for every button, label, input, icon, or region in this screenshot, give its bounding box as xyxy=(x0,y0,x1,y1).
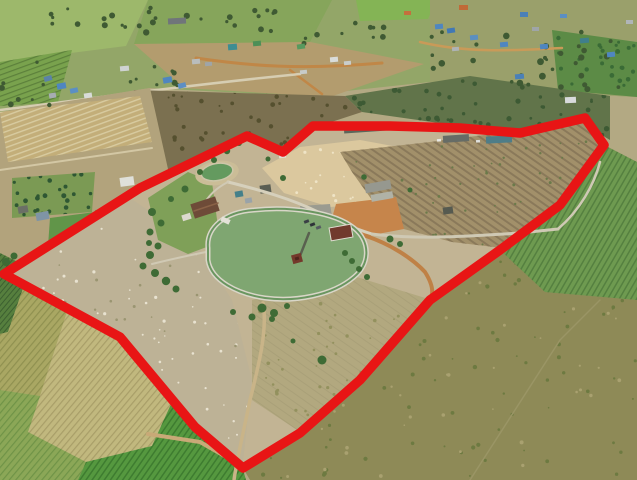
tree xyxy=(249,314,256,321)
scrub-texture-light-dot xyxy=(575,391,578,394)
field-south-mottle-dot xyxy=(319,302,323,306)
palm-orchard-trees-dot xyxy=(631,70,635,74)
trees-top-mid-dot xyxy=(257,14,261,18)
sand-speckle-dot xyxy=(352,196,354,198)
scrub-texture-dark-dot xyxy=(564,311,566,313)
scrub-texture-light-dot xyxy=(479,281,482,284)
orchard-main-trees-dot xyxy=(482,243,484,245)
orchard-main-trees-dot xyxy=(434,177,436,179)
dirt-west-speckle-dot xyxy=(92,270,95,273)
village-house-roof xyxy=(470,35,478,41)
dirt-west-speckle-dot xyxy=(57,278,59,280)
scrub-forest-texture-dot xyxy=(320,114,323,117)
trees-village-right-dot xyxy=(574,61,578,65)
field-south-mottle-dot xyxy=(329,326,332,329)
orchard-main-trees-dot xyxy=(438,195,441,198)
orchard-main-trees-dot xyxy=(485,172,488,175)
palm-orchard-trees-dot xyxy=(627,46,631,50)
dirt-west-speckle-dot xyxy=(233,420,235,422)
tree-band-texture-dot xyxy=(559,92,564,97)
trees-village-right-dot xyxy=(461,79,465,83)
trees-top-mid-dot xyxy=(272,9,277,14)
orchard-main-trees-dot xyxy=(432,202,434,204)
trees-top-center-dot xyxy=(372,26,376,30)
field-south-mottle-dot xyxy=(272,383,275,386)
orchard-left-trees-dot xyxy=(89,192,92,195)
field-south-mottle-dot xyxy=(266,362,270,366)
tree-band-texture-dot xyxy=(424,89,429,94)
dirt-west-speckle-dot xyxy=(192,352,195,355)
tree xyxy=(269,316,275,322)
scrub-texture-dark-dot xyxy=(499,261,502,264)
field-south-mottle-dot xyxy=(316,365,318,367)
tree xyxy=(318,356,327,365)
tree-band-texture-dot xyxy=(542,105,546,109)
field-south-mottle-dot xyxy=(326,346,328,348)
scrub-texture-dark-dot xyxy=(562,371,565,374)
scrub-texture-light-dot xyxy=(465,292,467,294)
sand-speckle-dot xyxy=(310,187,313,190)
scrub-texture-light-dot xyxy=(579,365,581,367)
field-south-mottle-dot xyxy=(325,320,327,322)
trees-top-mid-dot xyxy=(199,17,202,20)
scrub-texture-light-dot xyxy=(321,428,323,430)
palm-orchard-trees-dot xyxy=(599,55,603,59)
tree xyxy=(284,303,290,309)
scrub-texture-dark-dot xyxy=(476,443,480,447)
scrub-texture-dark-dot xyxy=(363,457,367,461)
sand-speckle-dot xyxy=(343,176,345,178)
dirt-west-speckle-dot xyxy=(158,342,160,344)
trees-top-left-dot xyxy=(102,22,108,28)
scrub-forest-texture-dot xyxy=(182,125,186,129)
trees-mid-left-dot xyxy=(129,80,133,84)
tree-band-texture-dot xyxy=(440,107,444,111)
village-house-roof xyxy=(626,20,633,24)
scrub-forest-texture-dot xyxy=(172,94,175,97)
tree-band-texture-dot xyxy=(426,116,431,121)
trees-village-right-dot xyxy=(520,85,525,90)
trees-top-left-dot xyxy=(102,16,107,21)
palm-orchard-trees-dot xyxy=(570,82,573,85)
dirt-west-speckle-dot xyxy=(235,357,237,359)
orchard-main-trees-dot xyxy=(499,163,502,166)
orchard-main-trees-dot xyxy=(525,147,528,150)
orchard-main-trees-dot xyxy=(485,148,487,150)
scrub-texture-dark-dot xyxy=(485,284,489,288)
trees-top-left-dot xyxy=(121,24,124,27)
sand-speckle-dot xyxy=(295,191,298,194)
trees-village-right-dot xyxy=(537,58,544,65)
scrub-forest-texture-dot xyxy=(326,104,329,107)
village-house-roof xyxy=(344,61,351,66)
trees-top-center-dot xyxy=(381,25,387,31)
field-south-mottle-dot xyxy=(373,319,377,323)
field-south-mottle-dot xyxy=(335,352,338,355)
scrub-forest-texture-dot xyxy=(168,97,170,99)
orchard-main-trees-dot xyxy=(441,145,443,147)
scrub-forest-texture-dot xyxy=(199,99,204,104)
tree xyxy=(270,309,278,317)
tree-band-texture-dot xyxy=(586,108,591,113)
trees-mid-left-dot xyxy=(172,80,178,86)
dirt-west-speckle-dot xyxy=(228,437,230,439)
dirt-west-speckle-dot xyxy=(205,387,207,389)
scrub-forest-texture-dot xyxy=(249,115,253,119)
trees-village-right-dot xyxy=(582,82,587,87)
village-house-roof xyxy=(452,47,459,52)
orchard-main-trees-dot xyxy=(539,144,541,146)
tree xyxy=(397,241,403,247)
trees-village-right-dot xyxy=(617,85,621,89)
trees-village-right-dot xyxy=(470,58,476,64)
scrub-forest-texture-dot xyxy=(180,146,185,151)
trees-village-right-dot xyxy=(431,66,436,71)
tree-band-texture-dot xyxy=(604,126,609,131)
orchard-main-trees-dot xyxy=(429,164,431,166)
scrub-texture-light-dot xyxy=(345,451,349,455)
scrub-texture-light-dot xyxy=(617,378,621,382)
dirt-west-speckle-dot xyxy=(154,296,157,299)
trees-top-center-dot xyxy=(340,32,343,35)
trees-top-mid-dot xyxy=(269,29,273,33)
scrub-texture-light-dot xyxy=(379,474,383,478)
trees-top-left-dot xyxy=(143,29,149,35)
scrub-texture-dark-dot xyxy=(411,442,415,446)
scrub-texture-light-dot xyxy=(598,367,600,369)
scrub-forest-texture-dot xyxy=(230,102,234,106)
scrub-texture-dark-dot xyxy=(495,338,499,342)
trees-top-mid-dot xyxy=(227,14,233,20)
dirt-west-speckle-dot xyxy=(199,297,201,299)
tree-band-texture-dot xyxy=(449,118,454,123)
orchard-main-trees-dot xyxy=(425,183,427,185)
palm-orchard-trees-dot xyxy=(617,41,620,44)
aerial-photo xyxy=(0,0,637,480)
trees-top-left-dot xyxy=(154,16,158,20)
scrub-texture-dark-dot xyxy=(621,299,624,302)
field-south-mottle-dot xyxy=(278,359,280,361)
scrub-texture-dark-dot xyxy=(491,331,495,335)
sand-speckle-dot xyxy=(319,174,321,176)
trees-village-right-dot xyxy=(558,51,563,56)
scrub-forest-texture-dot xyxy=(173,138,177,142)
field-south-mottle-dot xyxy=(304,410,307,413)
orchard-left-trees-dot xyxy=(43,193,48,198)
tree-band-texture-dot xyxy=(474,102,478,106)
sand-speckle-dot xyxy=(303,151,306,154)
scrub-texture-dark-dot xyxy=(586,390,590,394)
scrub-texture-dark-dot xyxy=(548,407,550,409)
trees-mid-left-dot xyxy=(155,83,158,86)
dirt-west-speckle-dot xyxy=(164,335,165,336)
trees-left-edge-dot xyxy=(35,61,38,64)
tree xyxy=(2,258,10,266)
tree-band-texture-dot xyxy=(539,95,542,98)
scrub-forest-texture-dot xyxy=(311,97,315,101)
tree xyxy=(408,188,413,193)
scrub-texture-dark-dot xyxy=(613,377,615,379)
trees-village-right-dot xyxy=(551,68,555,72)
scrub-texture-dark-dot xyxy=(503,274,506,277)
scrub-texture-light-dot xyxy=(390,386,392,388)
village-house-roof xyxy=(515,74,524,80)
trees-top-center-dot xyxy=(372,36,375,39)
field-south-mottle-dot xyxy=(332,342,334,344)
tree xyxy=(148,208,156,216)
tree xyxy=(230,309,236,315)
palm-orchard-trees-dot xyxy=(600,61,604,65)
trees-village-right-dot xyxy=(474,42,478,46)
tree xyxy=(361,174,367,180)
dirt-west-speckle-dot xyxy=(207,343,210,346)
trees-village-right-dot xyxy=(558,84,564,90)
scrub-forest-texture-dot xyxy=(219,105,221,107)
tree xyxy=(364,274,370,280)
scrub-texture-dark-dot xyxy=(434,379,436,381)
village-house-roof xyxy=(192,59,200,65)
orchard-main-trees-dot xyxy=(451,166,453,168)
trees-top-mid-dot xyxy=(232,23,237,28)
tree-band-texture-dot xyxy=(437,92,442,97)
dirt-west-scrubdots-dot xyxy=(196,294,199,297)
scrub-texture-light-dot xyxy=(442,413,446,417)
dirt-west-speckle-dot xyxy=(177,382,179,384)
dirt-west-scrubdots-dot xyxy=(59,264,61,266)
scrub-texture-dark-dot xyxy=(503,392,505,394)
dirt-west-speckle-dot xyxy=(223,404,225,406)
scrub-texture-light-dot xyxy=(503,324,506,327)
scrub-texture-dark-dot xyxy=(382,386,386,390)
trees-village-right-dot xyxy=(578,73,584,79)
field-bright-top xyxy=(356,0,436,21)
dirt-west-speckle-dot xyxy=(220,350,223,353)
scrub-forest-texture-dot xyxy=(200,137,204,141)
scrub-texture-dark-dot xyxy=(444,445,446,447)
orchard-left-trees-dot xyxy=(16,191,20,195)
orchard-left-trees-dot xyxy=(47,178,52,183)
orchard-main-trees-dot xyxy=(585,140,588,143)
scrub-texture-dark-dot xyxy=(619,451,622,454)
dirt-west-speckle-dot xyxy=(161,369,163,371)
field-south-mottle-dot xyxy=(326,386,329,389)
tree xyxy=(173,286,180,293)
orchard-left-trees-dot xyxy=(35,196,40,201)
trees-left-edge-dot xyxy=(1,81,5,85)
orchard-main-trees-dot xyxy=(401,179,404,182)
dirt-west-scrubdots-dot xyxy=(139,284,142,287)
scrub-texture-light-dot xyxy=(493,367,495,369)
orchard-main-trees-dot xyxy=(459,183,461,185)
orchard-left-trees-dot xyxy=(65,198,70,203)
tree xyxy=(151,269,159,277)
scrub-texture-dark-dot xyxy=(612,441,615,444)
trees-village-right-dot xyxy=(430,35,434,39)
orchard-main-trees-dot xyxy=(546,178,548,180)
tree xyxy=(342,250,348,256)
dirt-west-speckle-dot xyxy=(171,358,173,360)
orchard-left-trees-dot xyxy=(22,213,25,216)
orchard-left-trees-dot xyxy=(13,181,16,184)
dirt-west-speckle-dot xyxy=(103,312,106,315)
trees-top-left-dot xyxy=(137,23,142,28)
trees-village-right-dot xyxy=(577,44,581,48)
village-house-roof xyxy=(228,44,237,51)
sand-speckle-dot xyxy=(315,180,318,183)
palm-orchard-trees-dot xyxy=(599,46,602,49)
palm-orchard-trees-dot xyxy=(615,44,618,47)
scrub-texture-light-dot xyxy=(459,450,462,453)
scrub-texture-dark-dot xyxy=(615,473,618,476)
scrub-texture-light-dot xyxy=(445,316,448,319)
village-house-roof xyxy=(330,57,338,63)
tree-band-texture-dot xyxy=(479,121,483,125)
sand-speckle-dot xyxy=(319,148,322,151)
tree-band-texture-dot xyxy=(402,109,406,113)
scrub-texture-dark-dot xyxy=(545,459,549,463)
scrub-texture-dark-dot xyxy=(423,339,427,343)
dirt-west-scrubdots-dot xyxy=(151,316,153,318)
scrub-texture-dark-dot xyxy=(452,358,454,360)
orchard-left-trees-dot xyxy=(87,206,91,210)
village-house-roof xyxy=(404,11,411,15)
scrub-forest-texture-dot xyxy=(220,110,223,113)
dirt-west-speckle-dot xyxy=(129,289,131,291)
field-south-mottle-dot xyxy=(346,379,348,381)
dirt-west-speckle-dot xyxy=(53,292,55,294)
orchard-main-trees-dot xyxy=(444,233,446,235)
field-south-mottle-dot xyxy=(275,392,279,396)
trees-mid-left-dot xyxy=(153,65,157,69)
orchard-left-trees-dot xyxy=(15,203,19,207)
scrub-texture-dark-dot xyxy=(471,445,475,449)
orchard-main-trees-dot xyxy=(425,211,427,213)
scrub-texture-light-dot xyxy=(429,354,432,357)
trees-top-mid-dot xyxy=(225,20,228,23)
orchard-main-trees-dot xyxy=(561,157,563,159)
tree xyxy=(387,236,394,243)
field-south-mottle-dot xyxy=(397,315,400,318)
tree-band-texture-dot xyxy=(590,99,593,102)
scrub-texture-dark-dot xyxy=(411,373,415,377)
scrub-forest-texture-dot xyxy=(275,95,279,99)
scrub-texture-dark-dot xyxy=(329,438,332,441)
scrub-texture-dark-dot xyxy=(517,278,521,282)
orchard-main-trees-dot xyxy=(355,161,357,163)
orchard-left-trees-dot xyxy=(58,188,61,191)
dirt-west-scrubdots-dot xyxy=(94,309,96,311)
village-house-roof xyxy=(532,27,539,31)
palm-orchard-trees-dot xyxy=(610,73,615,78)
tree xyxy=(146,251,154,259)
orchard-main-trees-dot xyxy=(514,203,516,205)
dirt-west-speckle-dot xyxy=(128,298,130,300)
aerial-photo-canvas xyxy=(0,0,637,480)
sand-speckle-dot xyxy=(350,198,352,200)
scrub-texture-dark-dot xyxy=(498,428,501,431)
field-south-mottle-dot xyxy=(318,385,321,388)
trees-mid-left-dot xyxy=(172,70,177,75)
orchard-left-trees-dot xyxy=(72,192,76,196)
tree-band-texture-dot xyxy=(423,108,427,112)
dirt-west-speckle-dot xyxy=(142,334,144,336)
orchard-main-trees-dot xyxy=(491,163,493,165)
scrub-texture-dark-dot xyxy=(557,355,561,359)
scrub-forest-texture-dot xyxy=(181,95,183,97)
scrub-texture-light-dot xyxy=(520,440,524,444)
orchard-left-trees-dot xyxy=(64,185,68,189)
dirt-west-scrubdots-dot xyxy=(164,330,166,332)
scrub-texture-dark-dot xyxy=(602,313,605,316)
trees-village-right-dot xyxy=(440,30,444,34)
village-house-roof xyxy=(560,14,567,18)
trees-top-left-dot xyxy=(123,25,127,29)
orchard-main-trees-dot xyxy=(464,209,466,211)
dark-pad-2 xyxy=(443,206,454,214)
village-house-roof xyxy=(520,12,528,17)
tree-band-texture-dot xyxy=(473,120,477,124)
tree xyxy=(168,196,174,202)
orchard-main-trees-dot xyxy=(559,177,562,180)
tree-band-texture-dot xyxy=(370,111,373,114)
dirt-west-speckle-dot xyxy=(60,250,63,253)
trees-top-center-dot xyxy=(353,21,358,26)
trees-village-right-dot xyxy=(452,40,455,43)
scrub-texture-light-dot xyxy=(333,410,336,413)
orchard-main-trees-dot xyxy=(578,143,580,145)
scrub-forest-texture-dot xyxy=(286,137,289,140)
scrub-texture-dark-dot xyxy=(261,473,265,477)
scrub-texture-light-dot xyxy=(589,394,592,397)
field-south-mottle-dot xyxy=(306,414,309,417)
field-south-mottle-dot xyxy=(333,393,336,396)
orchard-main-trees-dot xyxy=(496,211,498,213)
scrub-texture-dark-dot xyxy=(476,327,480,331)
tree-band-texture-dot xyxy=(515,99,520,104)
palm-orchard-trees-dot xyxy=(632,44,635,47)
scrub-texture-dark-dot xyxy=(419,343,422,346)
scrub-texture-dark-dot xyxy=(534,336,536,338)
scrub-texture-light-dot xyxy=(399,394,401,396)
tree xyxy=(158,220,165,227)
dirt-west-speckle-dot xyxy=(101,228,103,230)
scrub-forest-texture-dot xyxy=(257,118,262,123)
scrub-texture-dark-dot xyxy=(270,457,272,459)
scrub-texture-dark-dot xyxy=(473,365,477,369)
tree xyxy=(11,253,18,260)
trees-mid-left-dot xyxy=(135,78,138,81)
scrub-texture-dark-dot xyxy=(566,325,570,329)
tree-band-texture-dot xyxy=(361,101,366,106)
orchard-left-trees-dot xyxy=(36,208,40,212)
field-south-mottle-dot xyxy=(313,349,316,352)
orchard-main-trees-dot xyxy=(494,205,496,207)
trees-village-right-dot xyxy=(578,54,584,60)
scrub-texture-dark-dot xyxy=(634,359,637,362)
tree xyxy=(349,258,355,264)
dirt-west-speckle-dot xyxy=(63,275,66,278)
trees-village-right-dot xyxy=(439,60,446,67)
orchard-main-trees-dot xyxy=(415,193,417,195)
trees-village-right-dot xyxy=(510,80,514,84)
trees-left-edge-dot xyxy=(16,97,21,102)
trees-top-left-dot xyxy=(49,12,54,17)
palm-orchard-trees-dot xyxy=(585,67,589,71)
trees-village-right-dot xyxy=(581,48,587,54)
palm-orchard-trees-dot xyxy=(620,66,624,70)
scrub-texture-dark-dot xyxy=(422,357,426,361)
trees-left-edge-dot xyxy=(8,101,14,107)
